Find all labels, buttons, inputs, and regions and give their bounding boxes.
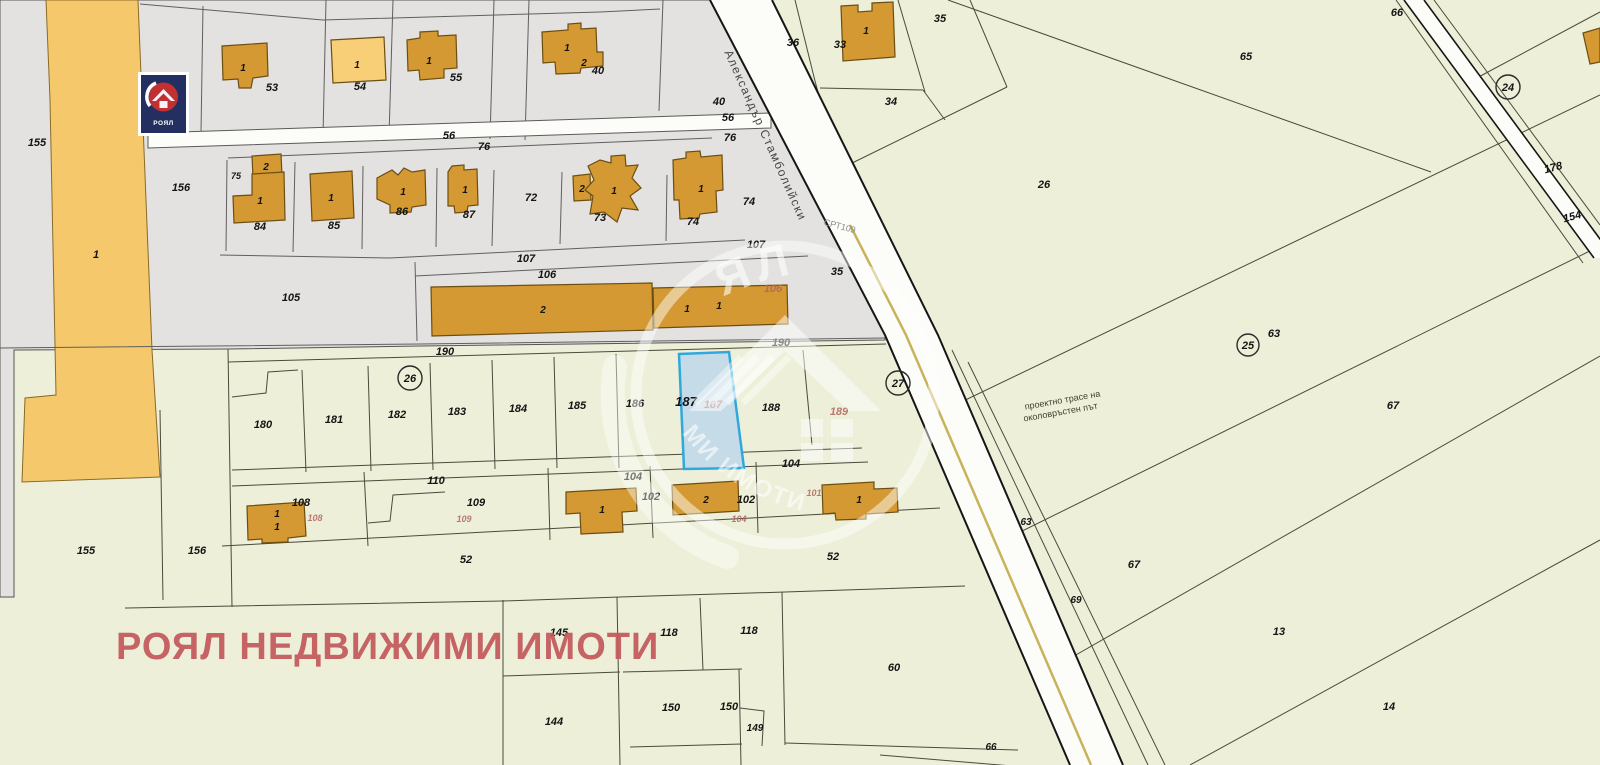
boundary-line (930, 95, 1600, 417)
building-number: 2 (578, 184, 585, 195)
boundary-line (923, 90, 945, 120)
building-number: 1 (599, 505, 605, 516)
building-number: 2 (580, 58, 587, 69)
parcel-label: 67 (1128, 559, 1141, 571)
division-number: 26 (403, 373, 417, 385)
agency-logo: РОЯЛ (138, 72, 189, 136)
parcel-label: 56 (722, 112, 735, 124)
boundary-line (503, 672, 620, 676)
boundary-line (430, 363, 433, 470)
boundary-line (368, 492, 445, 523)
boundary-line (364, 472, 368, 546)
building-number: 2 (702, 495, 709, 506)
parcel-label: 150 (720, 701, 739, 713)
boundary-line (228, 348, 232, 607)
parcel-label: 74 (743, 196, 755, 208)
building-number: 1 (611, 186, 617, 197)
house-window-icon (801, 419, 853, 461)
parcel-label: 63 (1020, 517, 1032, 528)
building (1583, 28, 1600, 64)
division-number: 27 (891, 378, 905, 390)
parcel-label: 155 (77, 545, 96, 557)
agency-brand-text: РОЯЛ НЕДВИЖИМИ ИМОТИ (116, 626, 659, 669)
boundary-line (232, 370, 298, 397)
parcel-label: 13 (1273, 626, 1285, 638)
building-number: 1 (716, 301, 722, 312)
parcel-label: 85 (328, 220, 341, 232)
parcel-label: 155 (28, 137, 47, 149)
parcel-label: 104 (731, 514, 746, 524)
building-number: 1 (400, 187, 406, 198)
parcel-label: 118 (740, 625, 758, 637)
parcel-label: 1 (93, 249, 99, 261)
parcel-label: 84 (254, 221, 266, 233)
parcel-label: 35 (934, 13, 947, 25)
parcel-label: 52 (460, 554, 472, 566)
boundary-line (880, 755, 1024, 765)
parcel-label: 182 (388, 409, 406, 421)
parcel-label: 156 (172, 182, 191, 194)
boundary-line (700, 598, 703, 670)
parcel-label: 178 (1543, 160, 1565, 177)
parcel-label: 60 (888, 662, 901, 674)
parcel-label: 183 (448, 406, 466, 418)
boundary-line (820, 88, 923, 90)
boundary-line (844, 87, 1007, 167)
parcel-label: 72 (525, 192, 537, 204)
building-number: 1 (257, 196, 263, 207)
building-number: 1 (684, 304, 690, 315)
boundary-line (160, 410, 163, 600)
parcel-label: 180 (254, 419, 273, 431)
boundary-line (125, 586, 965, 608)
boundary-line (623, 669, 742, 672)
building-number: 1 (462, 185, 468, 196)
boundary-line (970, 0, 1007, 87)
parcel-label: 76 (478, 141, 491, 153)
building-number: 1 (426, 56, 432, 67)
parcel-label: 181 (325, 414, 343, 426)
parcel-label: 190 (436, 346, 455, 358)
parcel-label: 56 (443, 130, 456, 142)
boundary-line (630, 744, 742, 747)
parcel-label: 66 (985, 742, 997, 753)
parcel-label: 65 (1240, 51, 1253, 63)
parcel-label: 66 (1391, 7, 1404, 19)
parcel-label: 67 (1387, 400, 1400, 412)
boundary-line (617, 597, 620, 765)
boundary-line (1067, 356, 1600, 660)
parcel-label: 86 (396, 206, 409, 218)
building-number: 1 (698, 184, 704, 195)
parcel-label: 185 (568, 400, 587, 412)
parcel-label: 156 (188, 545, 207, 557)
parcel-label: 73 (594, 212, 606, 224)
building-number: 1 (863, 26, 869, 37)
parcel-label: 75 (231, 171, 242, 181)
parcel-label: 35 (831, 266, 844, 278)
logo-house-body (160, 101, 168, 108)
parcel-label: 105 (282, 292, 301, 304)
parcel-label: 104 (782, 458, 800, 470)
parcel-label: 149 (747, 723, 764, 734)
parcel-label: 110 (427, 475, 445, 487)
boundary-line (1190, 540, 1600, 765)
building-number: 2 (539, 305, 546, 316)
parcel-label: 108 (307, 513, 322, 523)
parcel-label: 109 (467, 497, 486, 509)
division-number: 25 (1241, 340, 1255, 352)
boundary-line (232, 448, 862, 470)
parcel-label: 14 (1383, 701, 1395, 713)
parcel-label: 54 (354, 81, 366, 93)
parcel-label: 184 (509, 403, 527, 415)
boundary-line (1473, 12, 1600, 80)
boundary-line (554, 357, 557, 468)
parcel-label: 55 (450, 72, 463, 84)
parcel-label: 109 (456, 514, 471, 524)
parcel-label: 107 (517, 253, 536, 265)
boundary-line (948, 0, 1431, 172)
building-number: 1 (354, 60, 360, 71)
parcel-label: 36 (787, 37, 800, 49)
boundary-line (302, 370, 306, 472)
parcel-label: 33 (834, 39, 846, 51)
division-number: 24 (1501, 82, 1514, 94)
parcel-label: 118 (660, 627, 678, 639)
parcel-label: 40 (712, 96, 726, 108)
parcel-label: 34 (885, 96, 897, 108)
boundary-line (739, 669, 741, 765)
boundary-line (785, 743, 1018, 750)
parcel-label: 52 (827, 551, 839, 563)
boundary-line (492, 360, 495, 469)
parcel-label: 108 (292, 497, 311, 509)
verge-line (1396, 0, 1583, 263)
parcel-label: 106 (538, 269, 557, 281)
boundary-line (368, 366, 371, 471)
street-stamboliyski (710, 0, 1123, 765)
building-number: 1 (856, 495, 862, 506)
cadastral-map-viewport: 1111221111211211111121155156110553545540… (0, 0, 1600, 765)
parcel-label: 188 (762, 402, 781, 414)
parcel-label: 69 (1070, 595, 1082, 606)
parcel-label: 53 (266, 82, 278, 94)
boundary-line (782, 592, 785, 745)
building-number: 1 (274, 522, 280, 533)
parcel-label: 26 (1037, 179, 1051, 191)
parcel-label: 87 (463, 209, 476, 221)
building-number: 1 (274, 509, 280, 520)
boundary-line (898, 0, 925, 92)
parcel-label: 74 (687, 216, 699, 228)
parcel-label: 63 (1268, 328, 1280, 340)
building-number: 2 (262, 162, 269, 173)
parcel-label: 150 (662, 702, 681, 714)
building-number: 1 (328, 193, 334, 204)
verge-line (1434, 0, 1600, 225)
logo-caption: РОЯЛ (153, 120, 173, 127)
parcel-label: 40 (591, 65, 605, 77)
building-number: 1 (564, 43, 570, 54)
parcel-label: 144 (545, 716, 563, 728)
parcel-label: 76 (724, 132, 737, 144)
building-number: 1 (240, 63, 246, 74)
